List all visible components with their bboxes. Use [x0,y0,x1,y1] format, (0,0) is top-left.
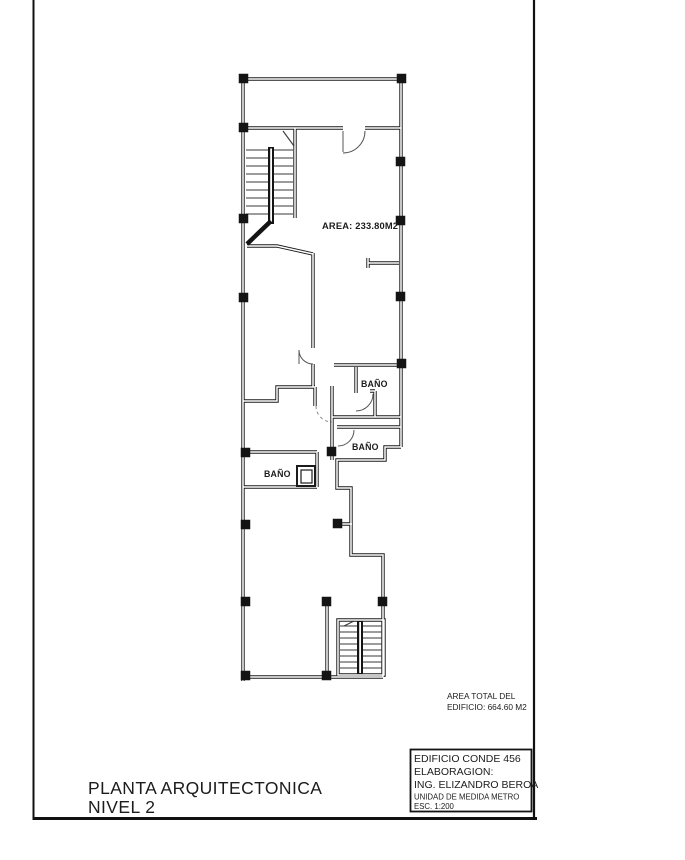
title-block: EDIFICIO CONDE 456 ELABORAGION: ING. ELI… [411,750,539,812]
door-arc-dashed [316,406,332,422]
bathroom-label-upper: BAÑO [361,379,388,389]
door-arc-mid-left [299,350,313,364]
drawing-sheet: AREA: 233.80M2 BAÑO BAÑO BAÑO AREA TOTAL… [0,0,685,860]
stair-entry-door-leaf [283,131,294,146]
title-block-engineer: ING. ELIZANDRO BEROA [414,779,538,791]
title-block-scale: ESC. 1:200 [414,802,455,811]
bathroom-label-mid: BAÑO [352,442,379,452]
area-label: AREA: 233.80M2 [322,221,398,231]
door-arc-bath-upper [356,394,373,411]
sheet-title: PLANTA ARQUITECTONICA NIVEL 2 [88,778,322,817]
title-block-elaboration: ELABORAGION: [414,766,493,778]
door-arc-top [343,131,365,153]
title-block-unit: UNIDAD DE MEDIDA METRO [414,793,519,802]
floor-plan-canvas: AREA: 233.80M2 BAÑO BAÑO BAÑO AREA TOTAL… [0,0,685,860]
sheet-title-line2: NIVEL 2 [88,797,155,817]
stair-direction-tick [344,621,354,626]
staircase-lower [340,621,382,674]
total-area-line2: EDIFICIO: 664.60 M2 [447,702,527,712]
total-area-note: AREA TOTAL DEL EDIFICIO: 664.60 M2 [447,691,527,712]
staircase-upper [246,131,294,244]
door-arcs [299,131,373,446]
columns [239,74,406,680]
sheet-title-line1: PLANTA ARQUITECTONICA [88,778,322,798]
title-block-building: EDIFICIO CONDE 456 [414,753,521,765]
bathroom-label-lower: BAÑO [264,469,291,479]
bathroom-fixture [297,466,315,486]
total-area-line1: AREA TOTAL DEL [447,691,516,701]
stair-break-line [247,221,271,244]
